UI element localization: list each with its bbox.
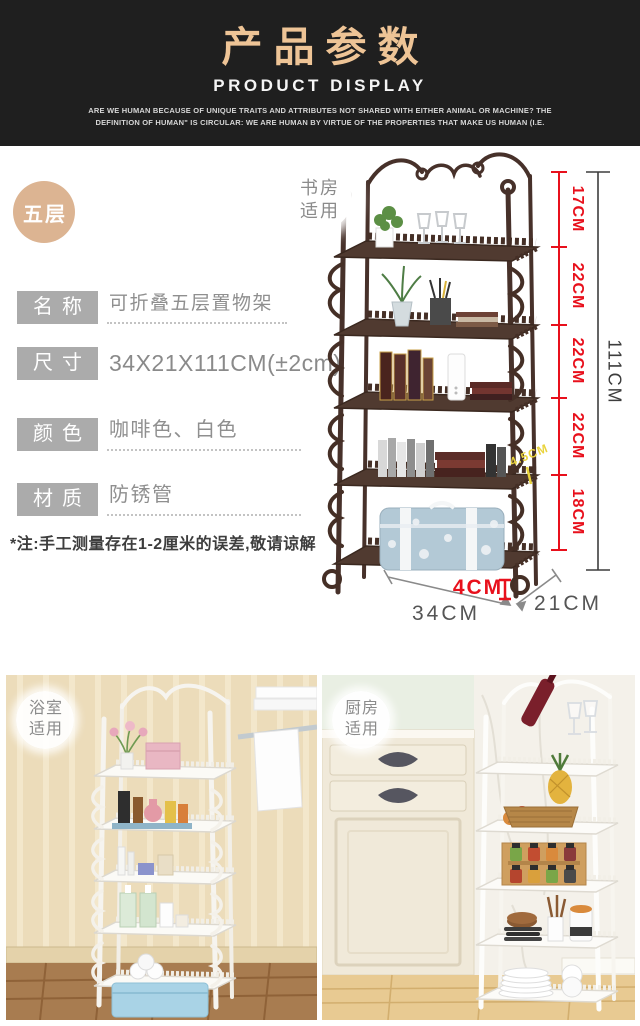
product-figure: 书房 适用 17CM 22CM 22CM 22CM 18CM 111CM 4CM… [280, 152, 640, 662]
dim-segment-4: 22CM [568, 413, 586, 460]
photo-bathroom: 浴室 适用 [6, 675, 317, 1020]
spec-label-size: 尺寸 [17, 347, 98, 380]
spec-label-color: 颜色 [17, 418, 98, 451]
spec-value-color: 咖啡色、白色 [107, 413, 301, 451]
baseboard [6, 947, 317, 963]
header-description: ARE WE HUMAN BECAUSE OF UNIQUE TRAITS AN… [70, 105, 570, 129]
tier2-items [382, 266, 498, 327]
tier-count-badge: 五层 [13, 181, 75, 243]
tier4-items [378, 438, 506, 477]
spec-row-material: 材质 防锈管 [17, 478, 301, 516]
spec-label-name: 名称 [17, 291, 98, 324]
scene-tag-bathroom-line2: 适用 [27, 720, 63, 741]
scene-tag-bathroom: 浴室 适用 [16, 691, 74, 749]
plate-stack [499, 965, 582, 998]
spec-value-name: 可折叠五层置物架 [107, 288, 287, 324]
spec-row-name: 名称 可折叠五层置物架 [17, 288, 287, 324]
page-title: 产品参数 [0, 0, 640, 73]
scene-tag-study-line1: 书房 [298, 177, 340, 200]
spice-rack [502, 843, 586, 885]
suitcase [380, 503, 504, 570]
scene-tag-study-line2: 适用 [298, 200, 340, 223]
measurement-note: *注:手工测量存在1-2厘米的误差,敬请谅解 [10, 530, 316, 554]
scene-tag-kitchen-line1: 厨房 [343, 699, 379, 720]
dim-total-height: 111CM [604, 339, 625, 404]
scene-tag-study: 书房 适用 [286, 170, 352, 230]
dim-segment-3: 22CM [568, 338, 586, 385]
scene-tag-bathroom-line1: 浴室 [27, 699, 63, 720]
photo-kitchen: 厨房 适用 [322, 675, 635, 1020]
dim-foot-height: 4CM [453, 576, 503, 600]
tier-dimension-line [551, 172, 567, 550]
cabinets [322, 730, 474, 975]
header: 产品参数 PRODUCT DISPLAY ARE WE HUMAN BECAUS… [0, 0, 640, 146]
spec-row-color: 颜色 咖啡色、白色 [17, 413, 301, 451]
product-detail-page: 产品参数 PRODUCT DISPLAY ARE WE HUMAN BECAUS… [0, 0, 640, 1026]
scene-tag-kitchen: 厨房 适用 [332, 691, 390, 749]
spec-value-material: 防锈管 [107, 478, 301, 516]
dim-segment-2: 22CM [568, 263, 586, 310]
spec-label-material: 材质 [17, 483, 98, 516]
dim-width: 34CM [412, 602, 480, 626]
page-subtitle: PRODUCT DISPLAY [0, 76, 640, 96]
dim-segment-5: 18CM [568, 489, 586, 536]
dim-segment-1: 17CM [568, 186, 586, 233]
dim-depth: 21CM [534, 592, 602, 616]
scene-tag-kitchen-line2: 适用 [343, 720, 379, 741]
